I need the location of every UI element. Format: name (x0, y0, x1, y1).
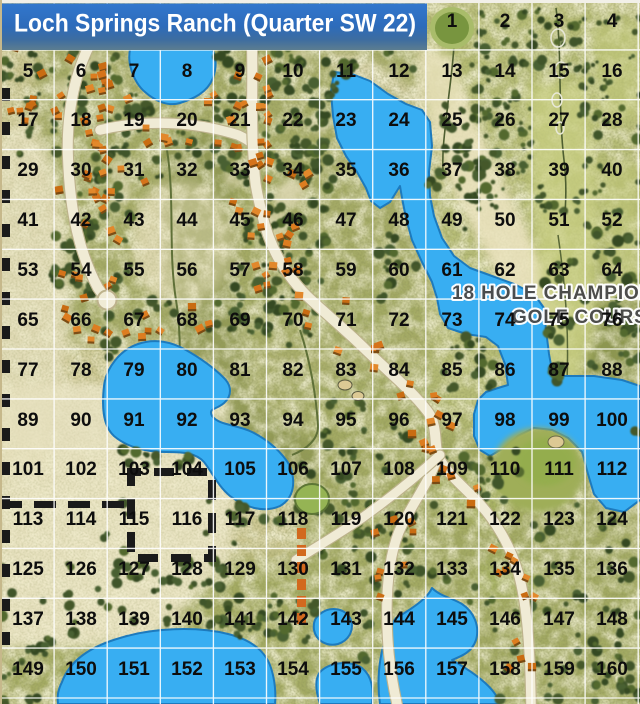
svg-text:17: 17 (17, 110, 38, 131)
svg-text:52: 52 (601, 210, 622, 231)
svg-text:30: 30 (70, 160, 91, 181)
svg-text:153: 153 (224, 659, 256, 680)
svg-text:150: 150 (65, 659, 97, 680)
svg-text:116: 116 (172, 509, 203, 530)
svg-text:121: 121 (436, 509, 468, 530)
svg-text:118: 118 (278, 509, 309, 530)
svg-text:143: 143 (330, 609, 362, 630)
svg-text:86: 86 (494, 360, 515, 381)
svg-text:80: 80 (176, 360, 197, 381)
svg-text:83: 83 (335, 360, 356, 381)
svg-text:11: 11 (336, 61, 357, 82)
svg-text:2: 2 (500, 11, 511, 32)
svg-text:95: 95 (335, 410, 357, 431)
svg-text:36: 36 (388, 160, 409, 181)
svg-text:126: 126 (65, 559, 97, 580)
svg-text:131: 131 (330, 559, 362, 580)
svg-text:23: 23 (335, 110, 356, 131)
svg-text:101: 101 (12, 459, 44, 480)
svg-text:144: 144 (383, 609, 415, 630)
svg-text:111: 111 (544, 459, 574, 480)
svg-text:90: 90 (70, 410, 91, 431)
svg-text:35: 35 (335, 160, 357, 181)
svg-text:152: 152 (171, 659, 203, 680)
svg-text:104: 104 (171, 459, 203, 480)
svg-text:106: 106 (277, 459, 309, 480)
svg-text:43: 43 (123, 210, 144, 231)
svg-text:5: 5 (23, 61, 34, 82)
svg-text:27: 27 (548, 110, 569, 131)
svg-text:115: 115 (119, 509, 150, 530)
svg-text:13: 13 (441, 61, 462, 82)
svg-text:76: 76 (601, 310, 622, 331)
svg-text:41: 41 (17, 210, 39, 231)
svg-text:15: 15 (548, 61, 570, 82)
svg-text:Loch Springs Ranch (Quarter SW: Loch Springs Ranch (Quarter SW 22) (14, 10, 416, 38)
svg-text:29: 29 (17, 160, 38, 181)
svg-text:72: 72 (388, 310, 409, 331)
svg-text:98: 98 (494, 410, 515, 431)
svg-text:75: 75 (548, 310, 570, 331)
svg-text:61: 61 (441, 260, 463, 281)
svg-text:4: 4 (607, 11, 618, 32)
svg-text:31: 31 (123, 160, 145, 181)
svg-text:103: 103 (118, 459, 150, 480)
svg-text:87: 87 (548, 360, 569, 381)
svg-text:84: 84 (388, 360, 410, 381)
svg-text:133: 133 (436, 559, 468, 580)
svg-text:73: 73 (441, 310, 462, 331)
svg-text:157: 157 (436, 659, 468, 680)
svg-text:47: 47 (335, 210, 356, 231)
svg-text:34: 34 (282, 160, 304, 181)
svg-text:62: 62 (494, 260, 515, 281)
svg-text:159: 159 (543, 659, 575, 680)
svg-text:99: 99 (548, 410, 569, 431)
svg-text:129: 129 (224, 559, 256, 580)
svg-text:19: 19 (123, 110, 144, 131)
svg-text:48: 48 (388, 210, 409, 231)
svg-text:139: 139 (118, 609, 150, 630)
svg-text:65: 65 (17, 310, 39, 331)
svg-text:40: 40 (601, 160, 622, 181)
svg-text:92: 92 (176, 410, 197, 431)
svg-text:145: 145 (436, 609, 468, 630)
svg-text:58: 58 (282, 260, 303, 281)
svg-text:142: 142 (277, 609, 309, 630)
svg-text:74: 74 (494, 310, 516, 331)
svg-text:141: 141 (224, 609, 256, 630)
svg-text:127: 127 (118, 559, 150, 580)
svg-text:89: 89 (17, 410, 38, 431)
svg-text:132: 132 (383, 559, 415, 580)
svg-text:158: 158 (489, 659, 521, 680)
svg-text:44: 44 (176, 210, 198, 231)
svg-text:54: 54 (70, 260, 92, 281)
svg-text:45: 45 (229, 210, 251, 231)
svg-text:88: 88 (601, 360, 622, 381)
svg-text:10: 10 (282, 61, 303, 82)
svg-text:135: 135 (543, 559, 575, 580)
svg-text:3: 3 (554, 11, 565, 32)
svg-text:155: 155 (330, 659, 362, 680)
svg-text:96: 96 (388, 410, 409, 431)
svg-text:91: 91 (123, 410, 145, 431)
svg-text:112: 112 (597, 459, 628, 480)
svg-text:56: 56 (176, 260, 197, 281)
svg-text:134: 134 (489, 559, 521, 580)
svg-text:156: 156 (383, 659, 415, 680)
svg-text:85: 85 (441, 360, 463, 381)
svg-text:66: 66 (70, 310, 91, 331)
svg-text:50: 50 (494, 210, 515, 231)
svg-text:70: 70 (282, 310, 303, 331)
svg-text:109: 109 (436, 459, 468, 480)
svg-text:79: 79 (123, 360, 144, 381)
svg-text:46: 46 (282, 210, 303, 231)
svg-text:1: 1 (447, 11, 458, 32)
svg-text:18 HOLE CHAMPIONSHIP: 18 HOLE CHAMPIONSHIP (452, 283, 640, 304)
svg-text:97: 97 (441, 410, 462, 431)
svg-text:7: 7 (129, 61, 140, 82)
svg-text:67: 67 (123, 310, 144, 331)
svg-text:32: 32 (176, 160, 197, 181)
svg-text:25: 25 (441, 110, 463, 131)
svg-text:8: 8 (182, 61, 193, 82)
svg-text:20: 20 (176, 110, 197, 131)
svg-text:151: 151 (118, 659, 150, 680)
svg-text:114: 114 (66, 509, 97, 530)
svg-text:63: 63 (548, 260, 569, 281)
svg-text:119: 119 (331, 509, 362, 530)
svg-text:81: 81 (229, 360, 251, 381)
svg-text:154: 154 (277, 659, 309, 680)
svg-text:149: 149 (12, 659, 44, 680)
svg-text:82: 82 (282, 360, 303, 381)
svg-text:137: 137 (12, 609, 44, 630)
svg-text:100: 100 (596, 410, 628, 431)
svg-text:136: 136 (596, 559, 628, 580)
svg-text:125: 125 (12, 559, 44, 580)
svg-text:49: 49 (441, 210, 462, 231)
svg-text:12: 12 (388, 61, 409, 82)
svg-text:55: 55 (123, 260, 145, 281)
svg-text:113: 113 (13, 509, 44, 530)
svg-text:42: 42 (70, 210, 91, 231)
svg-text:107: 107 (330, 459, 362, 480)
svg-text:33: 33 (229, 160, 250, 181)
svg-text:146: 146 (489, 609, 521, 630)
svg-text:37: 37 (441, 160, 462, 181)
svg-text:102: 102 (65, 459, 97, 480)
svg-text:59: 59 (335, 260, 356, 281)
svg-text:16: 16 (601, 61, 622, 82)
svg-text:148: 148 (596, 609, 628, 630)
svg-text:128: 128 (171, 559, 203, 580)
svg-text:77: 77 (17, 360, 38, 381)
svg-text:38: 38 (494, 160, 515, 181)
svg-text:108: 108 (383, 459, 415, 480)
svg-text:39: 39 (548, 160, 569, 181)
svg-text:14: 14 (494, 61, 516, 82)
svg-text:105: 105 (224, 459, 256, 480)
svg-text:28: 28 (601, 110, 622, 131)
svg-text:57: 57 (229, 260, 250, 281)
svg-text:9: 9 (235, 61, 246, 82)
svg-text:94: 94 (282, 410, 304, 431)
svg-text:140: 140 (171, 609, 203, 630)
svg-text:21: 21 (229, 110, 251, 131)
svg-text:120: 120 (383, 509, 415, 530)
svg-text:24: 24 (388, 110, 410, 131)
svg-text:64: 64 (601, 260, 623, 281)
svg-text:117: 117 (225, 509, 256, 530)
svg-text:124: 124 (596, 509, 628, 530)
svg-text:122: 122 (489, 509, 521, 530)
svg-text:60: 60 (388, 260, 409, 281)
svg-text:138: 138 (65, 609, 97, 630)
svg-text:53: 53 (17, 260, 38, 281)
svg-text:147: 147 (543, 609, 575, 630)
svg-text:18: 18 (70, 110, 91, 131)
svg-text:123: 123 (543, 509, 575, 530)
svg-text:110: 110 (490, 459, 521, 480)
svg-text:68: 68 (176, 310, 197, 331)
svg-text:69: 69 (229, 310, 250, 331)
svg-text:93: 93 (229, 410, 250, 431)
svg-text:22: 22 (282, 110, 303, 131)
svg-text:71: 71 (335, 310, 357, 331)
svg-text:130: 130 (277, 559, 309, 580)
svg-text:51: 51 (548, 210, 570, 231)
svg-text:6: 6 (76, 61, 87, 82)
svg-text:160: 160 (596, 659, 628, 680)
svg-text:78: 78 (70, 360, 91, 381)
svg-text:26: 26 (494, 110, 515, 131)
